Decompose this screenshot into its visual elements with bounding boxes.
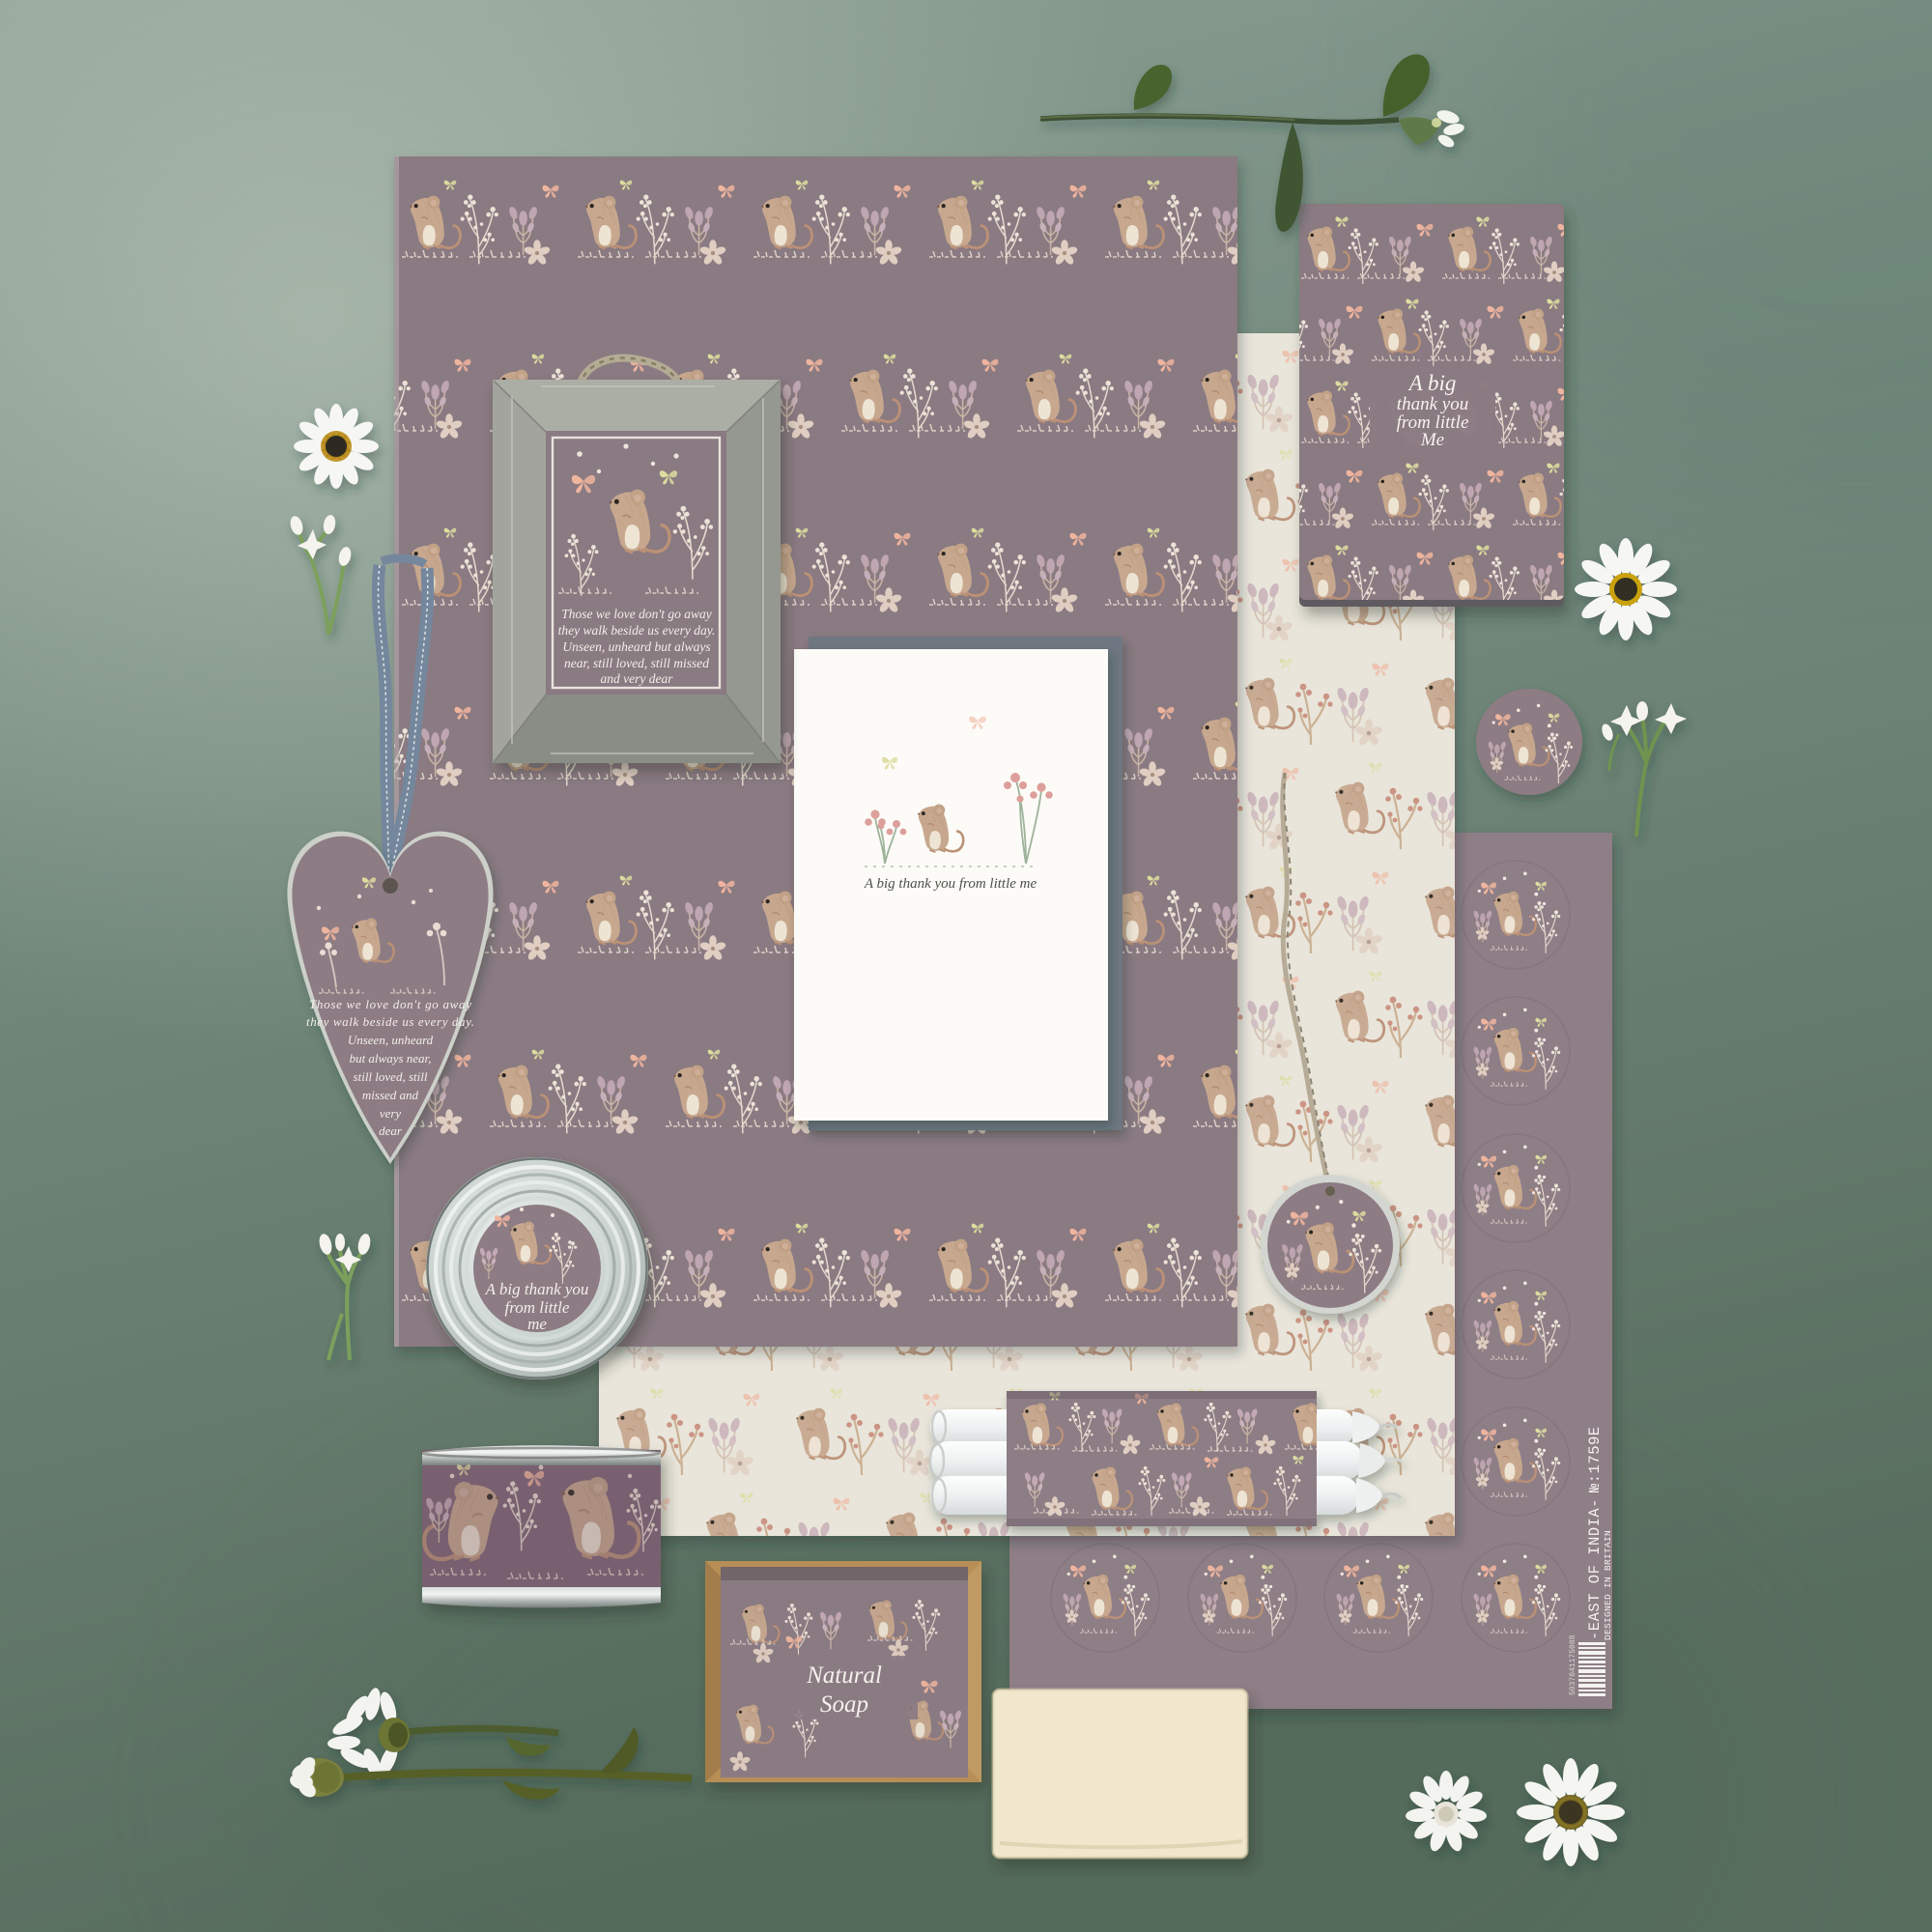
- svg-text:they walk beside us every day.: they walk beside us every day.: [558, 623, 716, 638]
- svg-text:A big thank you from little me: A big thank you from little me: [864, 876, 1037, 892]
- svg-text:A big thank you: A big thank you: [485, 1280, 589, 1298]
- svg-text:they walk beside us every day.: they walk beside us every day.: [306, 1014, 474, 1029]
- svg-text:missed and: missed and: [362, 1088, 419, 1102]
- svg-text:Those we love don't go away: Those we love don't go away: [309, 997, 471, 1011]
- svg-text:Unseen, unheard but always: Unseen, unheard but always: [562, 639, 710, 654]
- svg-text:Me: Me: [1420, 430, 1444, 450]
- svg-text:5037041175088: 5037041175088: [1569, 1634, 1577, 1695]
- svg-text:-EAST OF INDIA-: -EAST OF INDIA-: [1586, 1498, 1604, 1640]
- svg-text:A big: A big: [1407, 371, 1457, 395]
- svg-text:DESIGNED IN BRITAIN: DESIGNED IN BRITAIN: [1603, 1530, 1613, 1640]
- svg-text:thank you: thank you: [1397, 394, 1468, 414]
- svg-text:still loved, still: still loved, still: [354, 1069, 428, 1084]
- svg-text:very: very: [380, 1106, 402, 1121]
- svg-text:Soap: Soap: [820, 1691, 868, 1718]
- svg-text:me: me: [527, 1315, 547, 1333]
- svg-text:Those we love don't go away: Those we love don't go away: [561, 607, 712, 621]
- svg-text:Natural: Natural: [806, 1662, 882, 1689]
- svg-text:№:1759E: №:1759E: [1586, 1426, 1604, 1492]
- svg-text:dear: dear: [379, 1123, 403, 1138]
- svg-text:and very dear: and very dear: [601, 671, 674, 686]
- svg-text:near, still loved, still misse: near, still loved, still missed: [564, 656, 709, 670]
- svg-text:but always near,: but always near,: [350, 1051, 432, 1065]
- svg-text:Unseen, unheard: Unseen, unheard: [348, 1033, 434, 1047]
